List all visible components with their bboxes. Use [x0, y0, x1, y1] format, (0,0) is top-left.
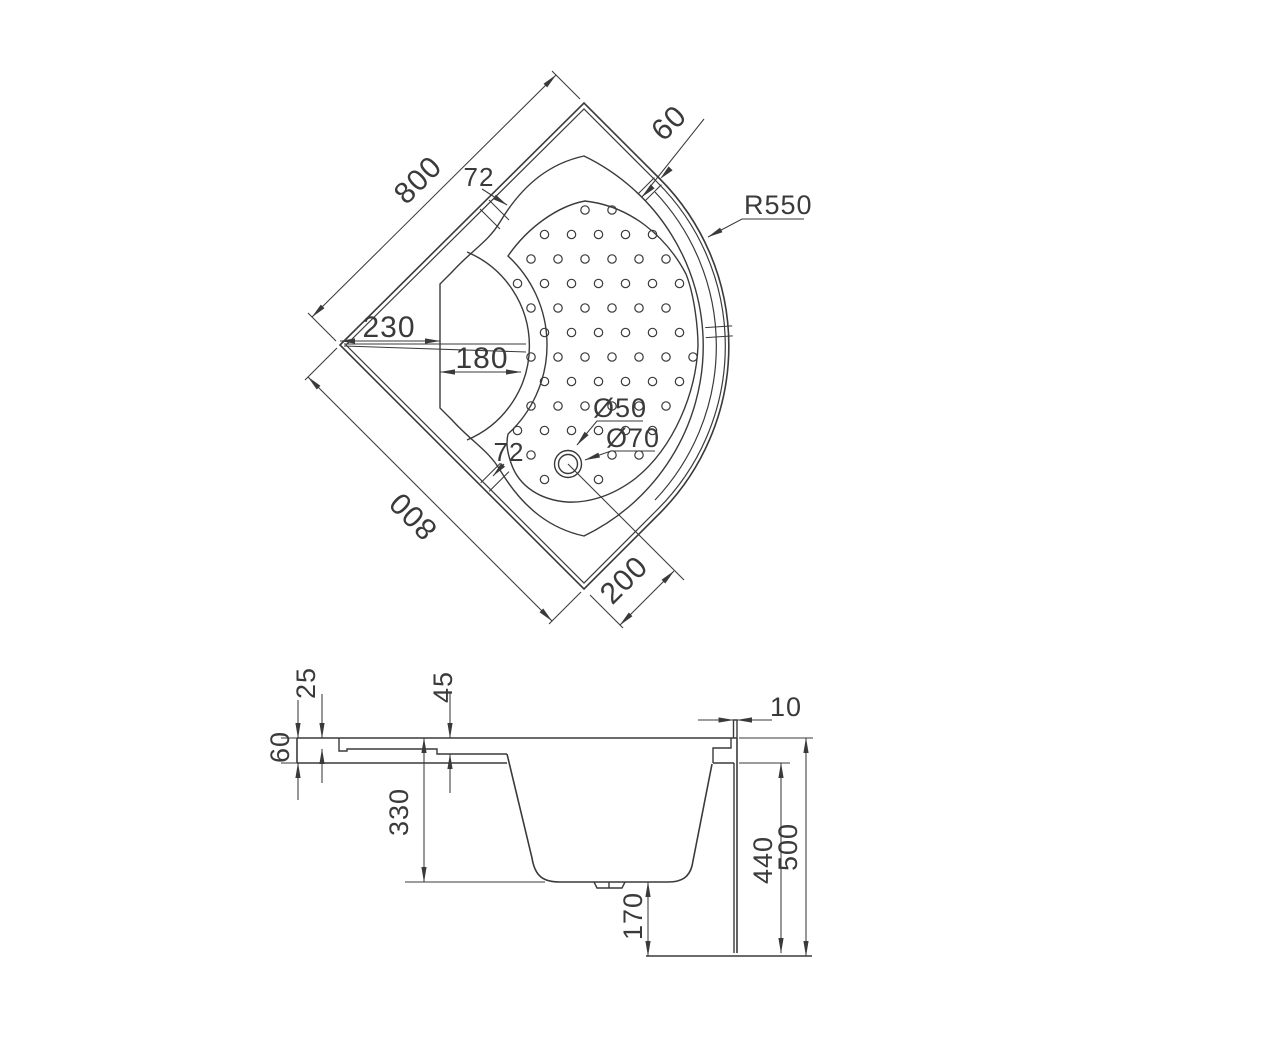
anti-slip-dot	[513, 426, 521, 434]
section-upstand	[734, 720, 738, 738]
anti-slip-dot	[662, 353, 670, 361]
anti-slip-dot	[662, 255, 670, 263]
dim-rim-width-label: 60	[645, 99, 693, 147]
anti-slip-boundary	[507, 201, 698, 502]
anti-slip-dot	[662, 304, 670, 312]
anti-slip-dot	[540, 230, 548, 238]
anti-slip-dot	[554, 402, 562, 410]
anti-slip-dot	[581, 304, 589, 312]
dim-corner-to-seat-label: 230	[362, 311, 415, 344]
anti-slip-dot	[567, 328, 575, 336]
anti-slip-dot	[554, 304, 562, 312]
anti-slip-dot	[540, 426, 548, 434]
anti-slip-dot	[567, 230, 575, 238]
anti-slip-dot	[581, 255, 589, 263]
technical-drawing-canvas: 800 800 230 180 72 72 60 R550	[0, 0, 1280, 1048]
anti-slip-dot	[675, 279, 683, 287]
dim-seat-width-label: 180	[455, 342, 508, 375]
anti-slip-dot	[527, 304, 535, 312]
dim-ledge-depth-label: 45	[428, 671, 458, 703]
anti-slip-dot	[594, 230, 602, 238]
dim-lip-depth-label: 25	[291, 667, 321, 699]
section-dimensions: 60 25 45 330 170 440 500	[265, 667, 813, 956]
anti-slip-dot	[513, 279, 521, 287]
anti-slip-dot	[540, 475, 548, 483]
anti-slip-dot	[594, 377, 602, 385]
drain-small-label: Ø50	[593, 393, 647, 423]
anti-slip-dot	[554, 255, 562, 263]
dim-edge-bottom-label: 800	[383, 485, 444, 546]
leader-R550	[708, 219, 804, 237]
dim-left-edge-height-label: 60	[265, 731, 295, 763]
plan-view: 800 800 230 180 72 72 60 R550	[305, 71, 813, 628]
section-drain-boss	[594, 882, 625, 888]
anti-slip-dot	[540, 279, 548, 287]
anti-slip-dot	[635, 353, 643, 361]
anti-slip-dot	[594, 328, 602, 336]
arrowhead-60-inner	[642, 184, 655, 197]
anti-slip-dot	[594, 475, 602, 483]
dim-total-height-label: 500	[773, 823, 803, 871]
front-radius-label: R550	[744, 190, 813, 220]
rim-mark-bottom-label: 72	[494, 437, 525, 467]
anti-slip-dot	[581, 206, 589, 214]
ext-lines-800-bottom	[305, 348, 581, 624]
section-view: 60 25 45 330 170 440 500	[265, 667, 813, 956]
anti-slip-dot	[621, 230, 629, 238]
anti-slip-dot	[608, 353, 616, 361]
drain-large-label: Ø70	[606, 423, 660, 453]
anti-slip-dot	[648, 279, 656, 287]
anti-slip-dot	[675, 328, 683, 336]
dim-wall-thickness-label: 10	[770, 692, 802, 722]
anti-slip-dot	[594, 426, 602, 434]
anti-slip-dot	[635, 304, 643, 312]
anti-slip-dot	[662, 402, 670, 410]
rim-mark-top-label: 72	[464, 162, 495, 192]
anti-slip-dot	[527, 255, 535, 263]
dim-line-800-bottom	[308, 377, 552, 621]
anti-slip-dot	[540, 328, 548, 336]
dim-under-clearance-label: 170	[618, 892, 648, 940]
anti-slip-dot	[621, 279, 629, 287]
anti-slip-dot	[608, 304, 616, 312]
anti-slip-dot	[581, 353, 589, 361]
section-basin-profile	[507, 754, 712, 882]
anti-slip-dot	[567, 377, 575, 385]
anti-slip-dot	[554, 353, 562, 361]
anti-slip-dot	[567, 279, 575, 287]
front-rim-band-line	[655, 192, 716, 500]
anti-slip-dot	[689, 353, 697, 361]
anti-slip-dot	[621, 328, 629, 336]
section-right-hook	[713, 738, 731, 763]
anti-slip-dot	[675, 377, 683, 385]
anti-slip-dot	[527, 451, 535, 459]
anti-slip-dot	[567, 426, 575, 434]
anti-slip-dot	[581, 402, 589, 410]
anti-slip-dot	[648, 377, 656, 385]
dim-edge-top-label: 800	[388, 150, 449, 211]
anti-slip-dot	[648, 328, 656, 336]
dim-basin-depth-label: 330	[384, 788, 414, 836]
anti-slip-dot	[594, 279, 602, 287]
anti-slip-dot	[608, 255, 616, 263]
section-left-hook	[339, 738, 507, 754]
plan-dimensions: 800 800 230 180 72 72 60 R550	[305, 71, 813, 628]
anti-slip-dot	[527, 353, 535, 361]
anti-slip-dot	[635, 255, 643, 263]
dim-drain-offset-label: 200	[594, 550, 655, 611]
anti-slip-dot	[621, 377, 629, 385]
